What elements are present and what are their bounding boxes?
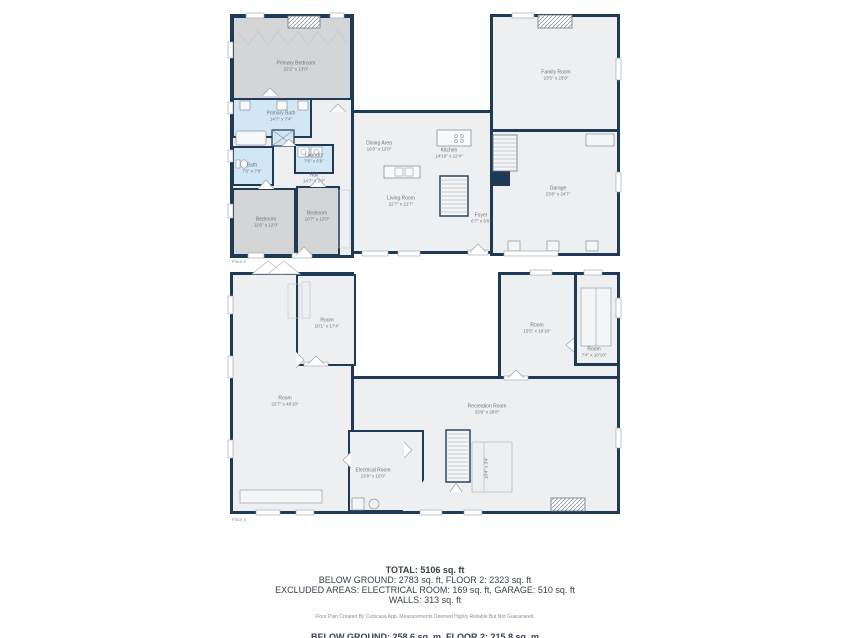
summary-total: TOTAL: 5106 sq. ft [0,565,850,575]
summary-floors: BELOW GROUND: 2783 sq. ft, FLOOR 2: 2323… [0,575,850,585]
summary-walls: WALLS: 313 sq. ft [0,595,850,605]
disclaimer-text: Floor Plan Created By Cubicasa App. Meas… [0,614,850,620]
summary-excluded: EXCLUDED AREAS: ELECTRICAL ROOM: 169 sq.… [0,585,850,595]
room-bedroom-1 [232,188,296,256]
wall-narrow-room-bottom [574,363,620,366]
summary-metric-cutoff: BELOW GROUND: 258.6 sq. m, FLOOR 2: 215.… [0,632,850,638]
wall-narrow-room [574,272,577,366]
floor2-tag: Floor 2 [232,259,246,264]
area-summary: TOTAL: 5106 sq. ft BELOW GROUND: 2783 sq… [0,565,850,605]
room-primary-bedroom [232,16,352,100]
floor-plan-sheet: Floor 2 Primary Bedroom 22'2" x 13'0" Pr… [0,0,850,638]
floor2-right-wing [490,14,620,256]
floor1-tag: Floor 1 [232,517,246,522]
room-primary-bath [232,98,312,138]
wall-block-garage [490,170,510,186]
room-laundry [294,144,334,174]
plan-decorations [0,0,850,638]
room-mid-top [296,274,356,366]
room-bedroom-2 [296,186,340,256]
room-bath [232,146,274,186]
floor2-middle-section [351,110,493,254]
wall-family-garage [490,129,620,132]
